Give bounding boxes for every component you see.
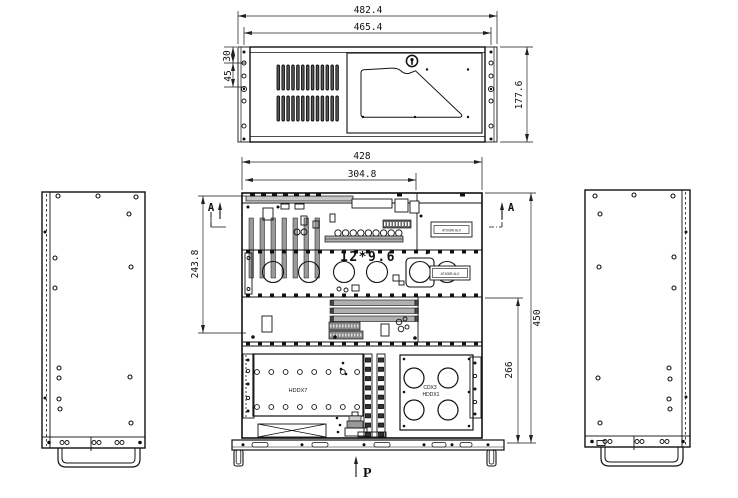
chassis-engineering-drawing: 482.4 465.4 30 45 177.6 428 304.8 243.8 … — [0, 0, 738, 498]
dim-overall-depth: 450 — [532, 309, 543, 326]
drawing-linework — [42, 11, 690, 477]
dim-inner-width-front: 465.4 — [354, 22, 383, 33]
load-marker-p: P — [363, 466, 372, 481]
part-tag-fan: ATX00R.ALX — [441, 272, 461, 276]
dim-plan-width: 428 — [353, 151, 370, 162]
dim-ear-45: 45 — [223, 70, 234, 81]
part-tag-rear: ATX00R.ALX — [442, 229, 462, 233]
dim-slot-width: 304.8 — [348, 169, 377, 180]
drawing-canvas: 482.4 465.4 30 45 177.6 428 304.8 243.8 … — [0, 0, 738, 498]
section-marker-a-right: A — [508, 202, 515, 214]
motherboard-size-label: 12*9.6 — [340, 250, 396, 265]
dim-front-height: 177.6 — [514, 80, 525, 109]
dim-bay-depth: 266 — [504, 361, 515, 378]
section-marker-a-left: A — [208, 202, 215, 214]
hdd-bay-label: HDDX1 — [423, 392, 440, 398]
dim-left-depth: 243.8 — [190, 249, 201, 278]
hdd-cage-label: HDDX7 — [289, 388, 308, 394]
cd-bay-label: CDX3 — [423, 385, 437, 391]
dim-overall-width-front: 482.4 — [354, 5, 383, 16]
dim-ear-30: 30 — [222, 50, 233, 62]
